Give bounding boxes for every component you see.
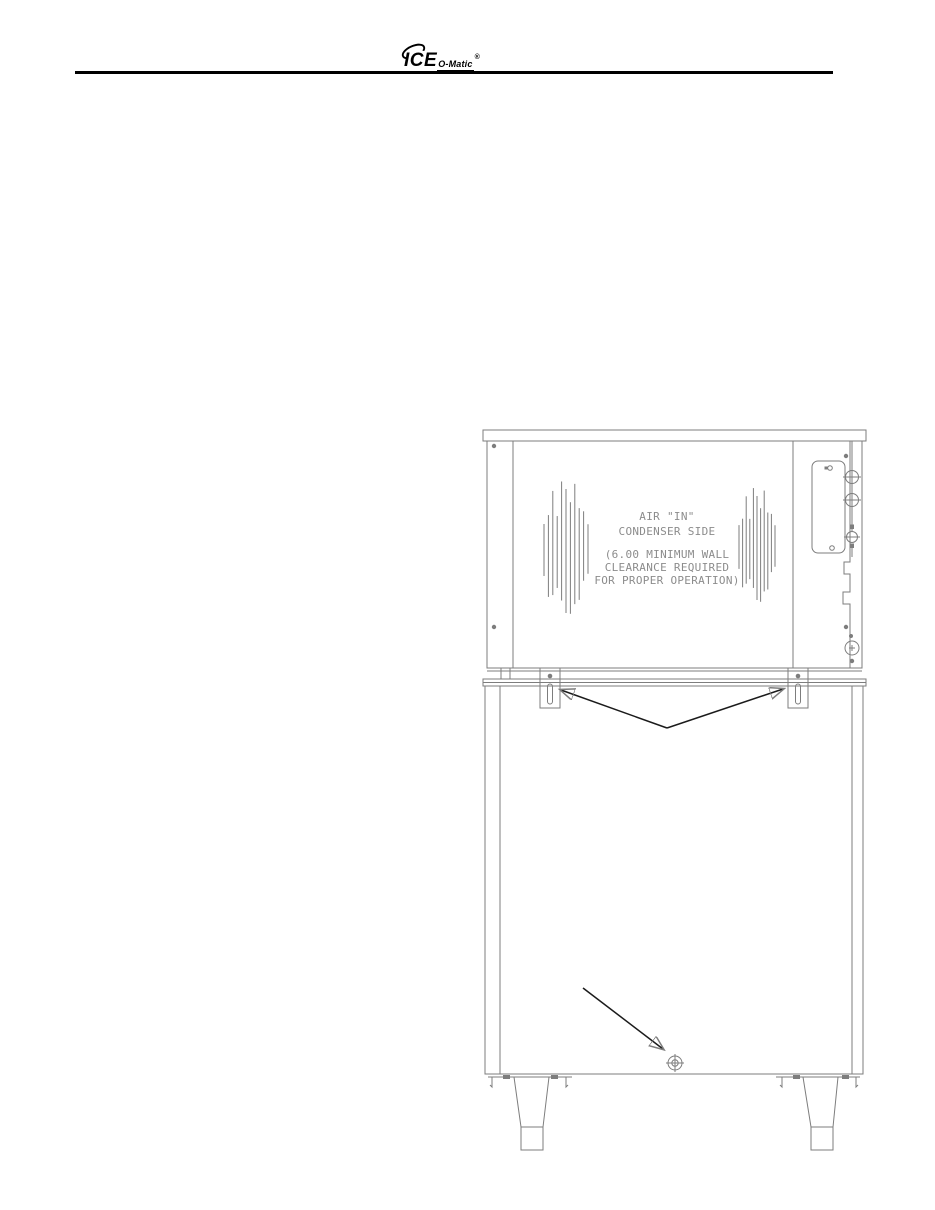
vent-left: [544, 481, 588, 613]
head-right-stepped-edge: [843, 441, 850, 668]
panel-screw-icon: [830, 546, 835, 551]
bracket-arrow-right: [667, 689, 783, 728]
bracket-slot: [796, 684, 801, 704]
drawing-labels: AIR "IN" CONDENSER SIDE (6.00 MINIMUM WA…: [594, 510, 739, 587]
screw-icon: [850, 659, 854, 663]
panel-screw-icon: [828, 466, 833, 471]
leg-taper: [803, 1077, 838, 1127]
screw-icon: [492, 444, 496, 448]
leg-bolt: [551, 1075, 558, 1079]
electrical-knockout: [845, 641, 859, 655]
bin-outline: [485, 686, 863, 1074]
drain-callout: [583, 988, 684, 1072]
panel-screw-flag: [825, 467, 828, 470]
leg-plate-hook: [566, 1077, 568, 1087]
clearance-note-line3: FOR PROPER OPERATION): [594, 574, 739, 587]
access-panel: [812, 461, 845, 553]
storage-bin: [485, 686, 863, 1087]
bracket-screw-icon: [796, 674, 801, 679]
leg-plate-hook: [780, 1077, 782, 1087]
air-in-label-line1: AIR "IN": [639, 510, 694, 523]
leg-foot: [521, 1127, 543, 1150]
mounting-bracket-right: [788, 668, 808, 708]
bracket-slot: [548, 684, 553, 704]
screw-icon: [492, 625, 496, 629]
leg-bolt: [842, 1075, 849, 1079]
fitting-nut: [850, 544, 855, 549]
head-top-cap: [483, 430, 866, 441]
bracket-callout-arrows: [561, 689, 783, 728]
mounting-bracket-left: [540, 668, 560, 708]
leg-taper: [514, 1077, 549, 1127]
ice-machine-head: AIR "IN" CONDENSER SIDE (6.00 MINIMUM WA…: [483, 430, 866, 679]
leg-left: [514, 1077, 549, 1150]
water-fittings: [843, 441, 861, 557]
bracket-screw-icon: [548, 674, 553, 679]
installation-side-view-drawing: AIR "IN" CONDENSER SIDE (6.00 MINIMUM WA…: [0, 0, 935, 1210]
drain-arrow: [583, 988, 663, 1049]
clearance-note-line2: CLEARANCE REQUIRED: [605, 561, 730, 574]
screw-icon: [844, 454, 848, 458]
fitting-nut: [850, 525, 855, 530]
screw-icon: [844, 625, 848, 629]
leg-bolt: [503, 1075, 510, 1079]
vent-right: [739, 488, 775, 602]
leg-right: [803, 1077, 838, 1150]
leg-plate-hook: [856, 1077, 858, 1087]
bracket-arrow-left: [561, 690, 667, 728]
leg-bolt: [793, 1075, 800, 1079]
air-in-label-line2: CONDENSER SIDE: [619, 525, 716, 538]
screw-icon: [849, 634, 853, 638]
access-panel-outline: [812, 461, 845, 553]
manual-page: ICE O-Matic ®: [0, 0, 935, 1210]
leg-foot: [811, 1127, 833, 1150]
leg-plate-hook: [490, 1077, 492, 1087]
clearance-note-line1: (6.00 MINIMUM WALL: [605, 548, 730, 561]
drain-fitting-icon: [666, 1054, 684, 1072]
